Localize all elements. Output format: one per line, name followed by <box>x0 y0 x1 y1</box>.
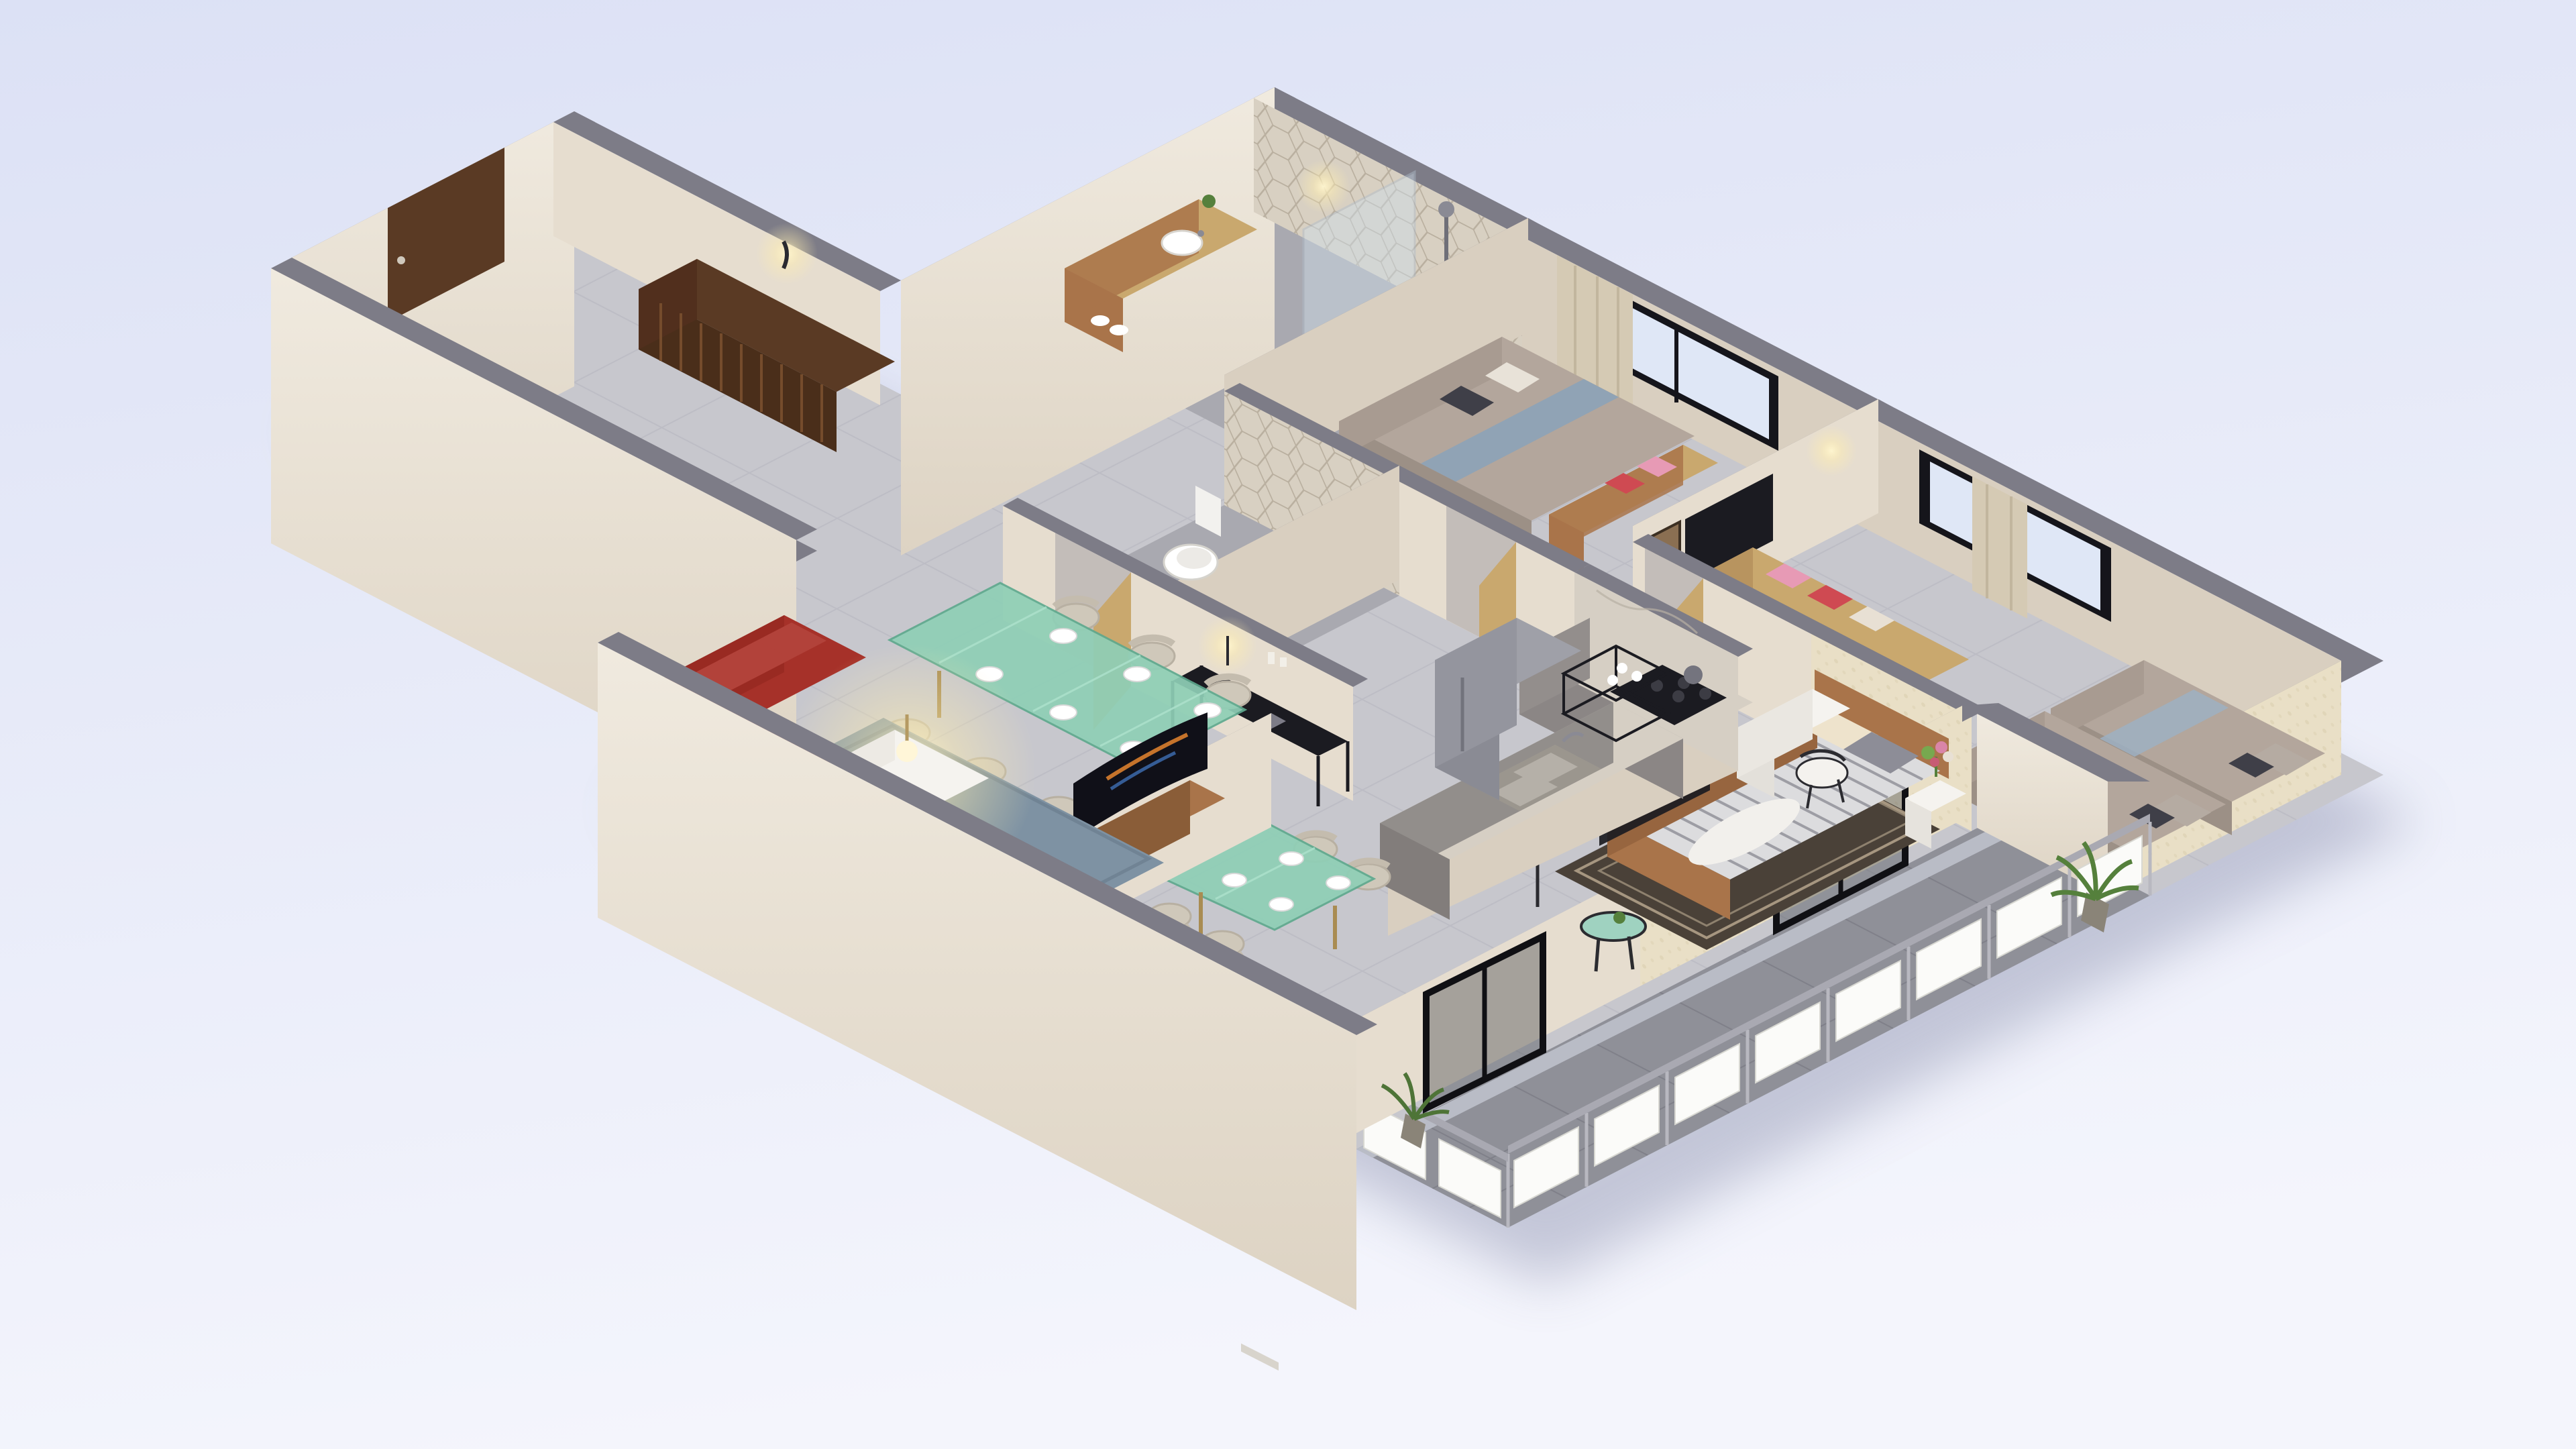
table-plant <box>1613 912 1625 924</box>
towel-roll <box>1110 325 1128 335</box>
sconce-glow-bedroom1 <box>1806 425 1857 476</box>
apartment-3d-render <box>0 0 2576 1449</box>
sconce-glow-bathroom <box>1297 160 1350 213</box>
faucet <box>1197 230 1204 237</box>
candle <box>1268 652 1275 664</box>
towel-roll <box>1091 315 1110 326</box>
candle <box>1280 657 1287 667</box>
basin <box>1162 231 1202 255</box>
pot <box>1684 665 1703 684</box>
table-lamp-shade <box>896 741 918 762</box>
vanity-plant <box>1202 195 1216 208</box>
entry-door-handle <box>397 256 405 264</box>
floor-plan-stage <box>0 0 2576 1449</box>
